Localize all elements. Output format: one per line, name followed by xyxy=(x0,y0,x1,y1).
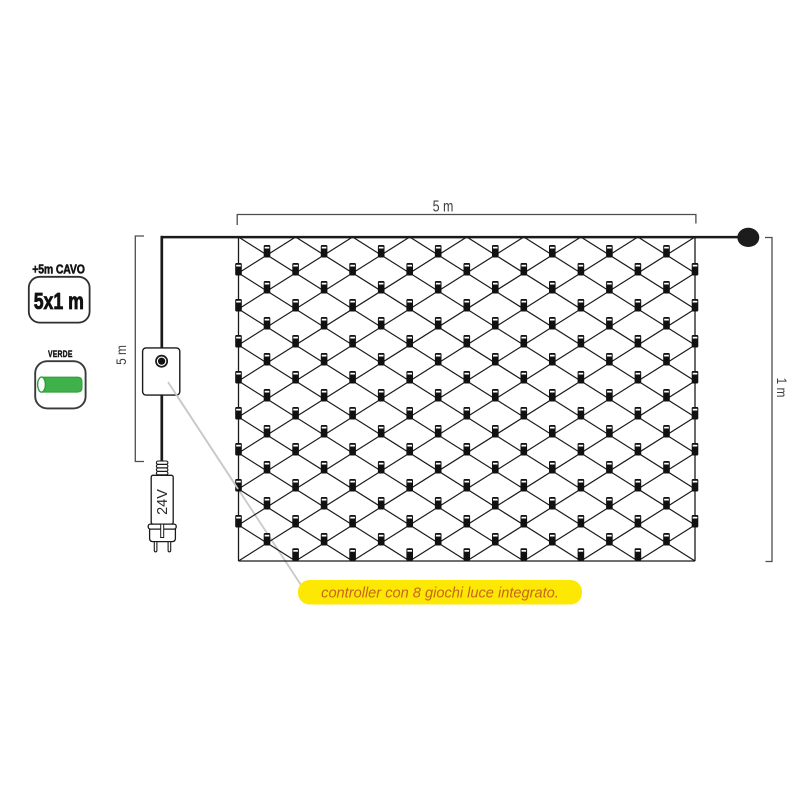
svg-text:24V: 24V xyxy=(155,489,171,515)
svg-text:controller con 8 giochi luce i: controller con 8 giochi luce integrato. xyxy=(321,586,559,602)
svg-text:VERDE: VERDE xyxy=(48,349,73,359)
svg-text:1 m: 1 m xyxy=(774,378,790,398)
svg-text:5 m: 5 m xyxy=(433,197,454,215)
svg-text:+5m CAVO: +5m CAVO xyxy=(32,264,85,277)
svg-text:5x1 m: 5x1 m xyxy=(34,289,84,315)
svg-text:5 m: 5 m xyxy=(113,345,129,365)
